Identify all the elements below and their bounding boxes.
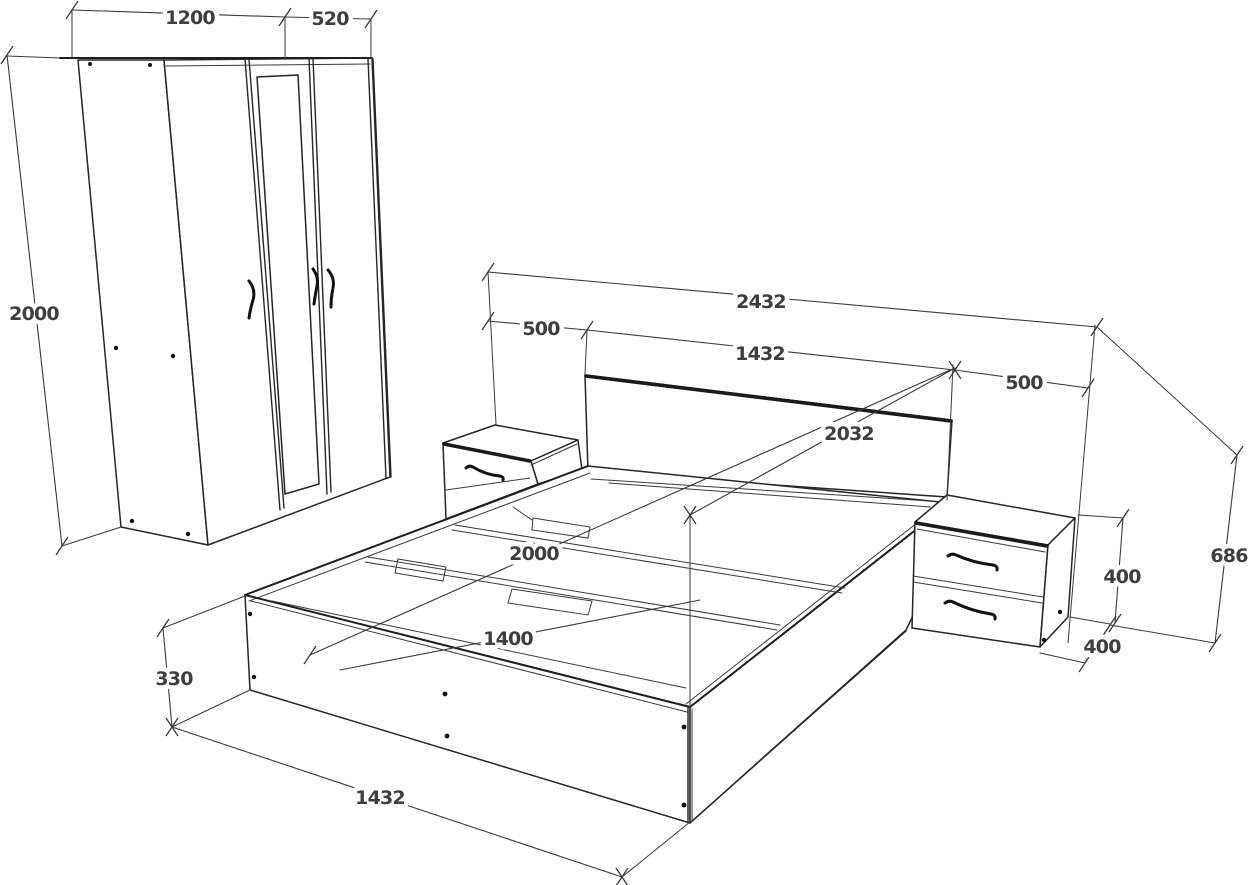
dim-label-nightstand-right-width: 500 — [1005, 372, 1043, 394]
dim-label-wardrobe-height: 2000 — [9, 303, 59, 325]
bed — [245, 466, 950, 823]
dim-line-2000-wardrobe — [7, 55, 62, 546]
dim-label-nightstand-drawer-height: 400 — [1103, 566, 1141, 588]
nightstand-right — [912, 495, 1075, 647]
dim-label-wardrobe-doors-width: 1200 — [165, 7, 215, 29]
dim-label-nightstand-depth: 400 — [1083, 636, 1121, 658]
dim-label-wardrobe-door-width: 520 — [311, 8, 349, 30]
drawing-canvas: 1200 520 2000 2432 500 1432 500 2032 200… — [0, 0, 1248, 885]
dim-label-bed-side-height: 330 — [155, 668, 193, 690]
dim-label-bed-inner-length: 2000 — [509, 543, 559, 565]
dim-label-nightstand-total-height: 686 — [1210, 545, 1248, 567]
furniture-technical-drawing: 1200 520 2000 2432 500 1432 500 2032 200… — [0, 0, 1248, 885]
dim-label-bed-frame-width-top: 1432 — [735, 343, 785, 365]
dim-label-nightstand-left-width: 500 — [522, 318, 560, 340]
dim-label-bed-frame-width-bottom: 1432 — [355, 787, 405, 809]
wardrobe — [60, 58, 391, 545]
dim-line-2432 — [488, 272, 1097, 327]
dim-label-bed-inner-width: 1400 — [483, 628, 533, 650]
dim-label-bed-total-width: 2432 — [736, 291, 786, 313]
dim-label-bed-length-overall: 2032 — [824, 423, 874, 445]
